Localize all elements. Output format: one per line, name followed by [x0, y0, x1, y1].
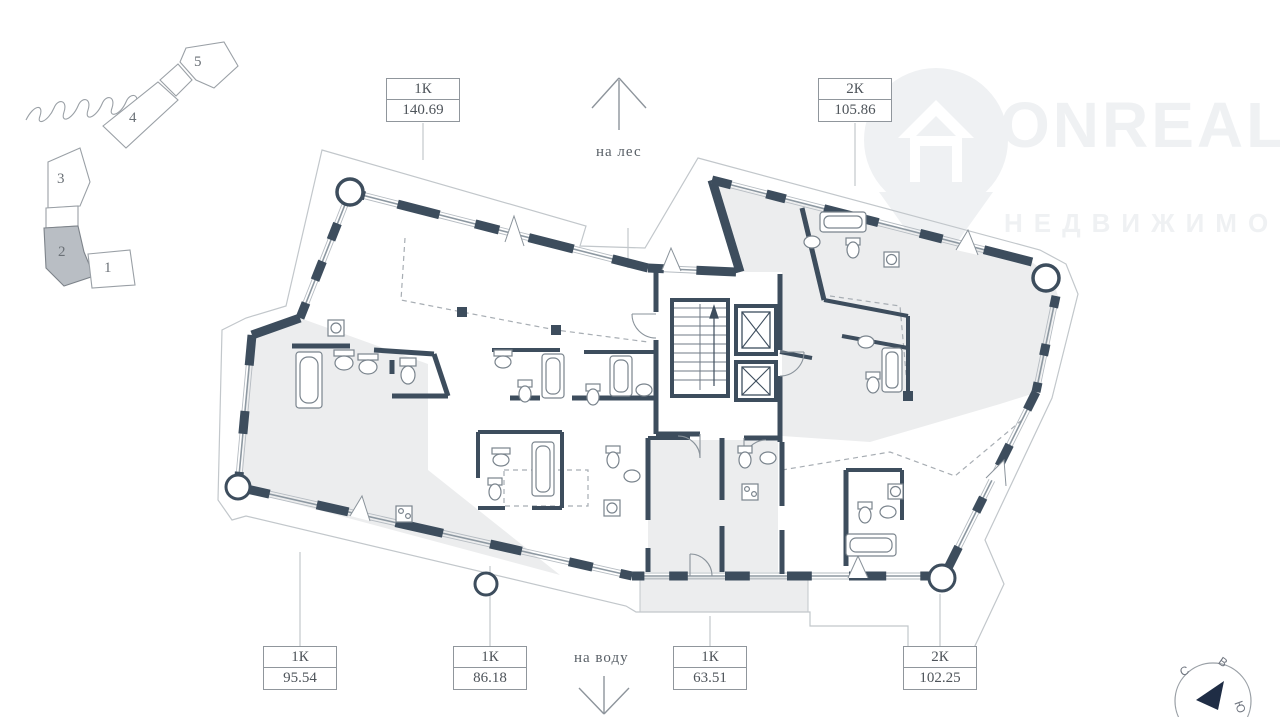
apartment-area: 63.51	[674, 668, 746, 689]
floor-plan-page: ONREALT НЕДВИЖИМОСТЬ 1 2 3 4 5 на лес на…	[0, 0, 1280, 717]
staircase	[672, 300, 728, 396]
minimap-building-4	[103, 82, 178, 148]
direction-forest-label: на лес	[596, 144, 642, 161]
balcony-fill	[640, 578, 808, 612]
direction-water-label: на воду	[574, 650, 629, 667]
minimap-building-3	[48, 148, 90, 208]
minimap-building-1	[88, 250, 135, 288]
apartment-type: 2К	[819, 79, 891, 100]
minimap-building-2	[44, 226, 94, 286]
apartment-fill-63	[648, 440, 778, 572]
apartment-type: 1К	[674, 647, 746, 668]
apartment-label-105: 2К 105.86	[818, 78, 892, 122]
apartment-area: 102.25	[904, 668, 976, 689]
minimap-building-4-label: 4	[129, 110, 137, 127]
apartment-label-86: 1К 86.18	[453, 646, 527, 690]
elevator-shaft-1	[736, 306, 776, 354]
apartment-area: 105.86	[819, 100, 891, 121]
apartment-type: 1К	[264, 647, 336, 668]
apartment-label-95: 1К 95.54	[263, 646, 337, 690]
minimap-building-3-label: 3	[57, 171, 65, 188]
watermark-tagline: НЕДВИЖИМОСТЬ	[1004, 208, 1254, 239]
stair-direction-arrow	[710, 306, 718, 386]
apartment-type: 2К	[904, 647, 976, 668]
minimap-building-1-label: 1	[104, 260, 112, 277]
apartment-label-102: 2К 102.25	[903, 646, 977, 690]
minimap-building-2-label: 2	[58, 244, 66, 261]
minimap-building-5-label: 5	[194, 54, 202, 71]
north-arrow-icon	[1196, 681, 1224, 710]
apartment-area: 95.54	[264, 668, 336, 689]
apartment-label-63: 1К 63.51	[673, 646, 747, 690]
apartment-type: 1К	[454, 647, 526, 668]
apartment-type: 1К	[387, 79, 459, 100]
elevator-shaft-2	[736, 362, 776, 400]
forest-arrow-icon	[592, 78, 646, 130]
apartment-area: 140.69	[387, 100, 459, 121]
apartment-label-140: 1К 140.69	[386, 78, 460, 122]
watermark-brand: ONREALT	[1000, 88, 1250, 162]
minimap-building-3-link	[46, 206, 78, 228]
apartment-area: 86.18	[454, 668, 526, 689]
water-arrow-icon	[579, 676, 629, 714]
